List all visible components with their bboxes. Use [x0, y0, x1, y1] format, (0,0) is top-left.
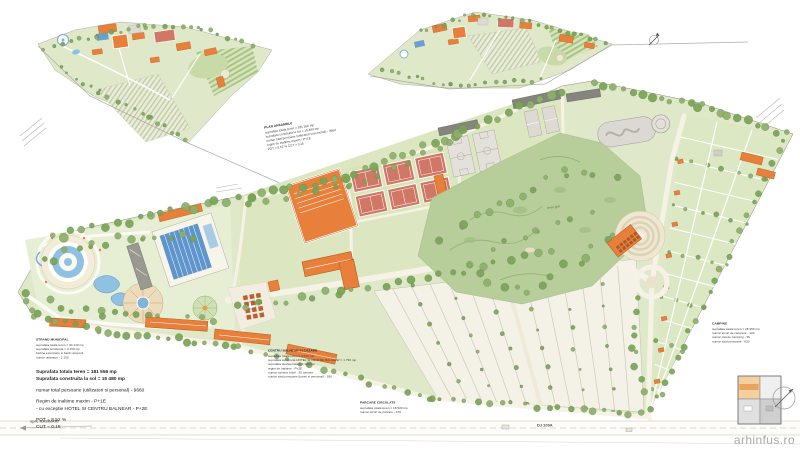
stat-cut: CUT = 0.15 [36, 424, 147, 431]
annotation-line: numar total persoane - 620 [712, 340, 760, 344]
overview-plan-1 [38, 22, 330, 205]
annotation-title: CAMPING [712, 322, 760, 326]
annotation-strand: STRAND MUNICIPAL suprafata totala teren … [36, 338, 84, 360]
annotation-title: STRAND MUNICIPAL [36, 338, 84, 342]
north-arrow-icon [649, 33, 659, 45]
annotation-line: numar total persoane (turisti si persona… [268, 375, 356, 379]
overview-plan-2 [368, 12, 748, 89]
annotation-centru-balnear: CENTRU BALNEAR SI CAZARE suprafata total… [268, 349, 356, 379]
annotation-title: CENTRU BALNEAR SI CAZARE [268, 349, 356, 353]
stat-height-regime: Regim de inaltime maxim - P+1E [36, 399, 147, 406]
road-name-label: DJ 106A [537, 424, 553, 428]
road-direction-label: spre RASINARI [30, 420, 59, 424]
stat-height-exception: - cu exceptie HOTEL SI CENTRU BALNEAR - … [36, 406, 147, 413]
stat-total-area: Suprafata totala teren = 181 556 mp [36, 369, 147, 376]
watermark: arhinfus.ro [734, 433, 795, 447]
annotation-title: PARCARE CIRCULATII [360, 401, 408, 405]
annotation-line: numar utilizatori - 2 100 [36, 356, 84, 360]
legend-keyplan [738, 376, 795, 424]
annotation-camping: CAMPING suprafata totala teren = 28 350 … [712, 322, 760, 344]
stat-persons: numar total persoane (utilizatori si per… [36, 387, 147, 394]
mini-sports-hall [112, 34, 129, 49]
annotation-line: numar locuri de parcare - 470 [360, 410, 408, 414]
stat-built-area: Suprafata construita la sol = 15 480 mp [36, 376, 147, 383]
annotation-parcare: PARCARE CIRCULATII suprafata totala tere… [360, 401, 408, 414]
round-garden [193, 296, 217, 320]
masterplan-page: PLAN ANSAMBLU suprafata totala teren = 1… [0, 0, 800, 450]
